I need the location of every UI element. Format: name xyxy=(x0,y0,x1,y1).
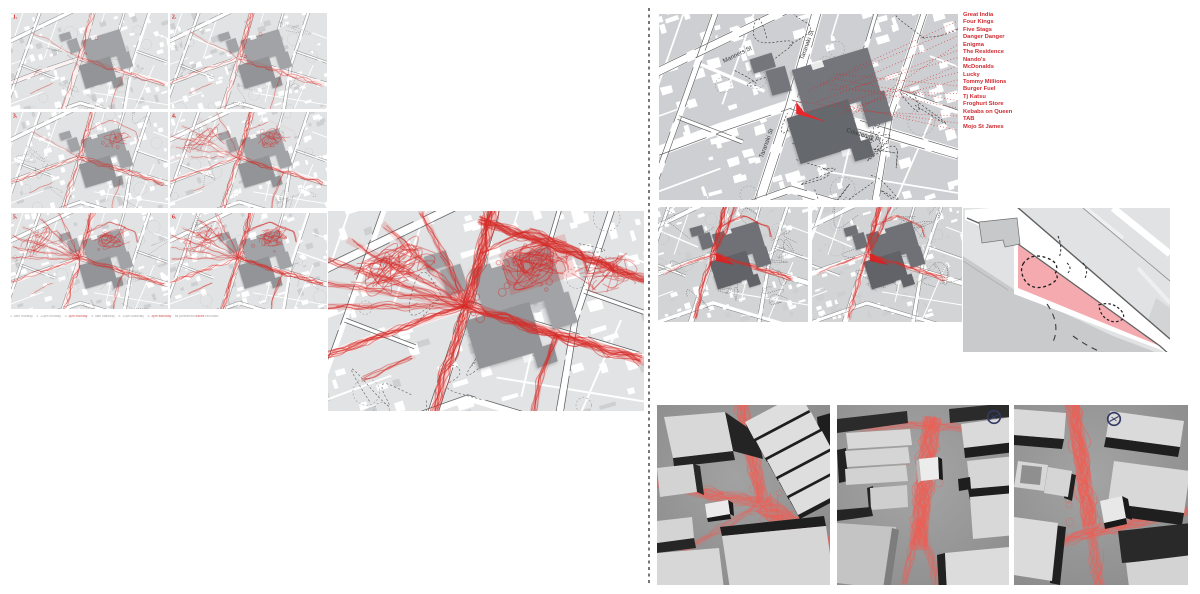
svg-text:5.: 5. xyxy=(13,215,18,221)
svg-text:2.: 2. xyxy=(172,15,177,21)
svg-text:6.: 6. xyxy=(172,215,177,221)
svg-text:3.: 3. xyxy=(13,114,18,120)
svg-text:4.: 4. xyxy=(172,114,177,120)
svg-text:1.: 1. xyxy=(13,15,18,21)
